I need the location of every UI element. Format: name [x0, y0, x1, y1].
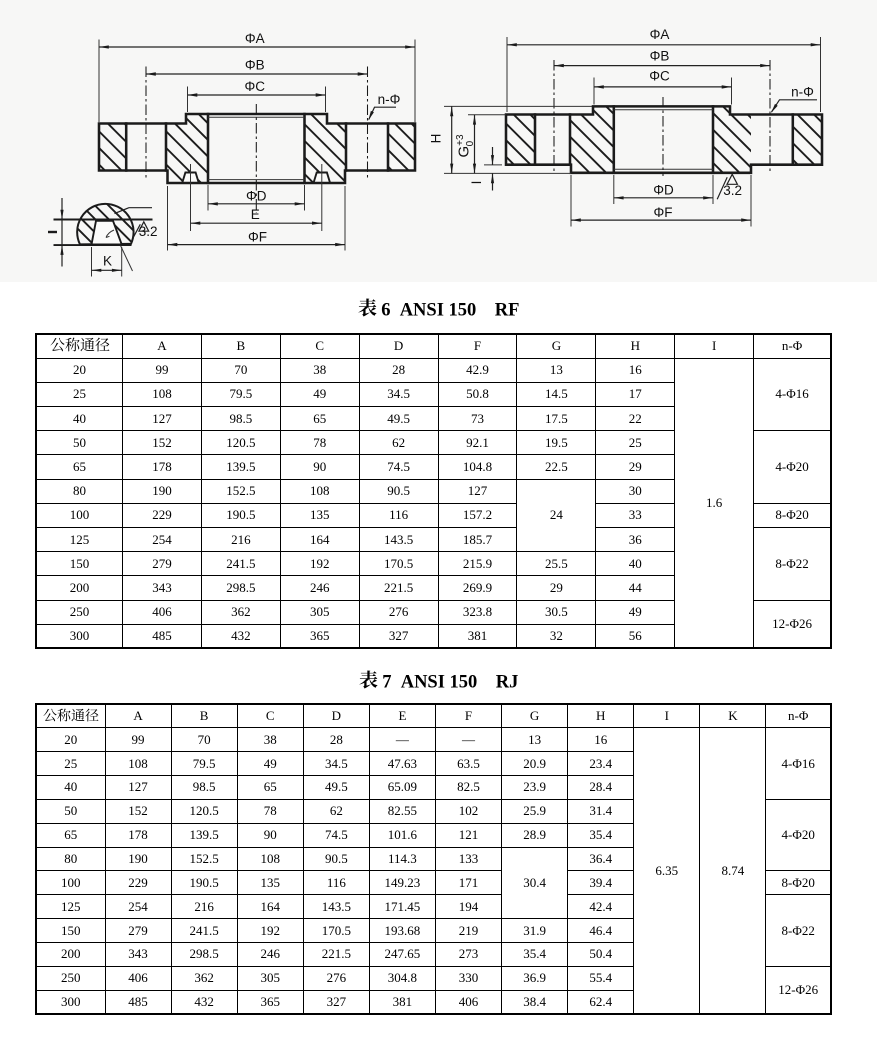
svg-text:ΦF: ΦF: [653, 205, 672, 220]
svg-text:3.2: 3.2: [723, 183, 742, 198]
svg-text:ΦC: ΦC: [245, 79, 266, 94]
svg-text:n-Φ: n-Φ: [791, 85, 814, 100]
svg-text:3.2: 3.2: [139, 224, 158, 239]
svg-text:E: E: [251, 207, 260, 222]
svg-text:ΦB: ΦB: [650, 49, 670, 64]
svg-text:ΦD: ΦD: [653, 182, 674, 197]
svg-text:I: I: [469, 181, 484, 185]
svg-text:ΦF: ΦF: [248, 230, 267, 245]
svg-text:K: K: [103, 254, 112, 269]
svg-text:n-Φ: n-Φ: [378, 92, 401, 107]
svg-text:ΦD: ΦD: [246, 189, 267, 204]
svg-text:H: H: [429, 134, 444, 144]
svg-text:ΦB: ΦB: [245, 57, 265, 72]
svg-text:ΦA: ΦA: [650, 27, 670, 42]
svg-text:ΦA: ΦA: [245, 31, 265, 46]
svg-text:ΦC: ΦC: [649, 68, 670, 83]
